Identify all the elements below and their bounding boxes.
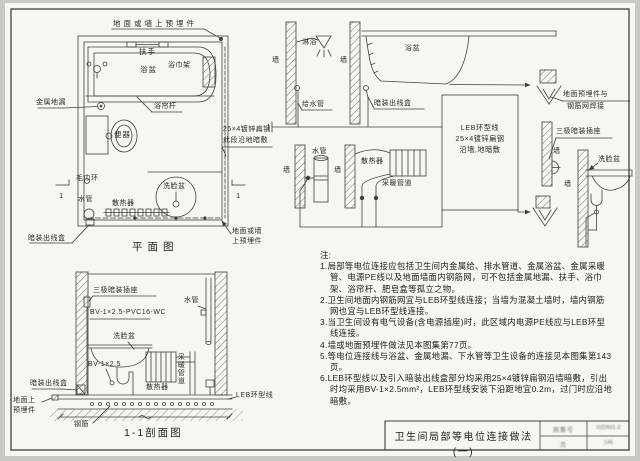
section-view-drawing (32, 272, 243, 423)
detail-wall-label-pipe: 墙 (283, 167, 291, 174)
plan-view-title: 平面图 (132, 242, 179, 253)
scanned-drawing-page: 地面或墙上预埋件 扶手 浴盆 浴巾架 金属地漏 浴帘杆 便器 25×4镀锌扁钢 … (0, 0, 640, 461)
leb-ring-box-text: LEB环型线 25×4镀锌扁钢 沿墙,地暗敷 (443, 122, 517, 155)
leb-box-line-2: 25×4镀锌扁钢 (443, 133, 517, 144)
section-socket-label: 三极暗装插座 (93, 287, 138, 294)
plan-towel-rack-label: 浴巾架 (168, 62, 191, 69)
section-basin-label: 洗脸盆 (113, 333, 136, 340)
section-wire-spec-label: BV-1×2.5-PVC16-WC (90, 309, 166, 316)
drawing-title: 卫生间局部等电位连接做法(一) (389, 428, 538, 458)
plan-radiator-label: 散热器 (112, 200, 135, 207)
section-leb-ring-label: LEB环型线 (236, 392, 273, 399)
detail-embed-weld-label-1: 地面预埋件与 (563, 91, 608, 98)
detail-tub-label: 浴盆 (405, 45, 420, 52)
section-wire-label: BV-1×2.5 (88, 361, 121, 368)
leb-box-line-3: 沿墙,地暗敷 (443, 144, 517, 155)
section-view-title: 1-1剖面图 (124, 428, 183, 439)
plan-tub-label: 浴盆 (140, 66, 157, 74)
section-heating-pipe-label: 采暖管道 (177, 353, 184, 385)
detail-wall-label-shower: 墙 (272, 57, 280, 64)
section-floor-embed-label-1: 地面上 (13, 397, 36, 404)
title-block-atlas-label: 图集号 (541, 425, 586, 434)
plan-water-pipe-label: 水管 (78, 196, 93, 203)
detail-basin-label: 洗脸盆 (598, 156, 621, 163)
detail-wall-label-radiator: 墙 (334, 167, 342, 174)
plan-flat-steel-label-1: 25×4镀锌扁钢 (223, 126, 271, 133)
plan-basin-label: 洗脸盆 (163, 183, 186, 190)
notes-block: 注: 1.局部等电位连接应包括卫生间内金属给、排水管道、金属浴盆、金属采暖管、电… (320, 250, 613, 407)
section-water-pipe-label: 水管 (184, 297, 199, 304)
detail-wall-label-tub: 墙 (340, 57, 348, 64)
detail-embed-weld-label-2: 钢筋网焊接 (567, 103, 605, 110)
plan-embed-bottom-label-2: 上预埋件 (232, 238, 262, 245)
section-rebar-label: 钢筋 (74, 421, 89, 428)
plan-handrail-label: 扶手 (139, 48, 156, 56)
plan-floor-drain-label: 金属地漏 (36, 99, 66, 106)
plan-embed-top-label: 地面或墙上预埋件 (113, 20, 197, 28)
plan-curtain-rod-label: 浴帘杆 (154, 103, 177, 110)
note-item-6: 6.LEB环型线以及引入暗装出线盒部分均采用25×4镀锌扁钢沿墙暗敷，引出时均采… (320, 373, 613, 407)
section-radiator-label: 散热器 (146, 384, 169, 391)
plan-embed-bottom-label-1: 地面或墙 (232, 228, 262, 235)
detail-wall-label-socket: 墙 (553, 148, 561, 155)
plan-cut-mark-left: 1 (59, 192, 64, 200)
leb-box-line-1: LEB环型线 (443, 122, 517, 133)
detail-outlet-box-label: 暗装出线盒 (374, 100, 412, 107)
notes-title: 注: (320, 250, 613, 261)
detail-water-pipe-label: 水管 (312, 148, 327, 155)
plan-flat-steel-label-2: 此段沿地暗敷 (223, 137, 268, 144)
note-item-1: 1.局部等电位连接应包括卫生间内金属给、排水管道、金属浴盆、金属采暖管、电源PE… (320, 261, 613, 295)
detail-radiator-label: 散热器 (361, 158, 384, 165)
section-floor-embed-label-2: 预埋件 (13, 407, 36, 414)
detail-heating-pipe-label: 采暖管道 (382, 180, 412, 187)
note-item-3: 3.当卫生间设有电气设备(含电源插座)时，此区域内电源PE线应与LEB环型线连接… (320, 317, 613, 339)
note-item-2: 2.卫生间地面内钢筋网宜与LEB环型线连接；当墙为混凝土墙时，墙内钢筋网也宜与L… (320, 295, 613, 317)
plan-toilet-label: 便器 (114, 131, 131, 139)
plan-view-drawing (30, 29, 272, 243)
section-outlet-box-label: 暗装出线盒 (30, 380, 68, 387)
plan-cut-mark-right: 1 (236, 192, 241, 200)
detail-wall-label-basin: 墙 (564, 181, 572, 188)
title-block-atlas-value: 02D501-2 (588, 425, 629, 431)
plan-towel-ring-label: 毛巾环 (76, 175, 99, 182)
detail-supply-pipe-label: 给水管 (302, 101, 325, 108)
plan-outlet-box-label: 暗装出线盒 (28, 235, 66, 242)
detail-socket-label: 三极暗装插座 (556, 128, 601, 135)
note-item-4: 4.墙或地面预埋件做法见本图集第77页。 (320, 340, 613, 351)
title-block-page-value: 145 (588, 440, 629, 446)
detail-shower-label: 淋浴 (302, 39, 317, 46)
note-item-5: 5.等电位连接线与浴盆、金属地漏、下水管等卫生设备的连接见本图集第143页。 (320, 351, 613, 373)
title-block-page-label: 页 (541, 440, 586, 449)
